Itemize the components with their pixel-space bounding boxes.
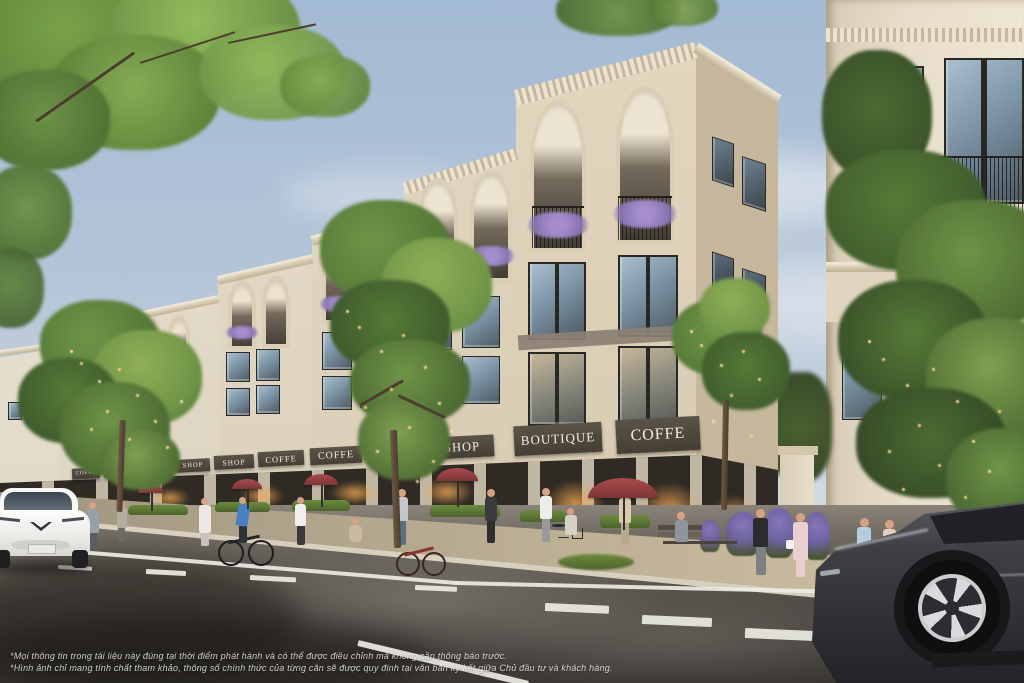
person — [484, 489, 498, 543]
shop-sign-label: SHOP — [222, 457, 246, 467]
person-legs — [756, 547, 766, 575]
arched-loggia — [262, 276, 290, 348]
person — [792, 513, 809, 577]
bicycle-wheel — [218, 540, 244, 566]
person-legs — [796, 560, 805, 577]
umbrella-pole — [457, 481, 459, 507]
window — [528, 352, 586, 426]
string-lights — [690, 330, 693, 333]
person-torso — [793, 522, 808, 560]
wisteria-flowers — [614, 200, 676, 228]
person-head — [756, 509, 765, 518]
planter-hedge — [128, 505, 188, 515]
handbag — [786, 540, 794, 549]
person — [539, 488, 553, 542]
window — [226, 388, 250, 416]
gate-pillar-cap — [776, 446, 818, 455]
shop-sign-label: COFFE — [630, 425, 686, 446]
person-seated — [674, 512, 688, 544]
person-torso — [295, 504, 306, 526]
shop-sign-label: COFFE — [265, 453, 297, 465]
person-head — [352, 518, 359, 525]
suv — [812, 492, 1024, 683]
person-torso — [540, 496, 552, 519]
shop-sign-label: COFFE — [318, 449, 355, 462]
window — [226, 352, 250, 382]
shop-sign-label: SHOP — [183, 461, 204, 469]
white-car — [0, 488, 92, 574]
tree-canopy — [700, 278, 770, 338]
person-head — [567, 508, 574, 515]
car-wheel — [72, 550, 88, 568]
tree-canopy — [100, 430, 180, 490]
person-legs — [239, 526, 247, 543]
person-seated — [564, 508, 577, 538]
window-side — [712, 136, 734, 187]
shop-sign: COFFE — [310, 446, 363, 466]
person-torso — [199, 505, 211, 533]
overhanging-foliage — [0, 70, 110, 170]
shop-sign: SHOP — [176, 458, 211, 473]
person — [752, 509, 769, 575]
street-render-scene: COFFE BOUTIQUE COFFE SHOP SHOP COFFE COF… — [0, 0, 1024, 683]
bicycle-wheel — [248, 540, 274, 566]
bicycle-wheel — [422, 552, 446, 576]
person-torso — [753, 518, 768, 547]
suv-hubcap — [945, 601, 959, 615]
window — [618, 346, 678, 424]
right-building-cornice — [826, 28, 1024, 42]
person-torso — [565, 515, 577, 535]
lavender-bush — [700, 520, 720, 552]
window — [256, 349, 280, 381]
disclaimer-line-2: *Hình ảnh chỉ mang tính chất tham khảo, … — [10, 663, 613, 673]
person — [198, 498, 211, 546]
person-legs — [487, 521, 495, 543]
person-legs — [542, 519, 550, 542]
person-head — [297, 497, 304, 504]
car-wheel — [0, 550, 10, 568]
arched-loggia — [228, 280, 256, 350]
person — [294, 497, 307, 545]
shop-sign: BOUTIQUE — [513, 422, 602, 457]
person-head — [542, 488, 550, 496]
person-head — [487, 489, 495, 497]
disclaimer-line-1: *Mọi thông tin trong tài liệu này đúng t… — [10, 651, 507, 661]
storefront-glow — [420, 478, 474, 506]
tree-canopy — [702, 332, 790, 410]
person — [618, 490, 632, 545]
string-lights — [70, 350, 73, 353]
wisteria-flowers — [528, 212, 588, 238]
person-legs — [118, 528, 125, 542]
person-legs — [297, 526, 305, 545]
window — [322, 376, 352, 410]
string-lights — [868, 340, 871, 343]
window — [618, 255, 678, 337]
shop-sign: COFFE — [258, 450, 305, 467]
umbrella-pole — [321, 485, 323, 507]
umbrella-pole — [151, 493, 153, 511]
shop-sign: SHOP — [214, 454, 255, 470]
wisteria-flowers — [226, 326, 258, 339]
person-head — [796, 513, 805, 522]
person-torso — [619, 498, 631, 523]
shop-sign-label: BOUTIQUE — [520, 429, 595, 449]
person-torso — [485, 497, 497, 521]
shop-sign: COFFE — [615, 416, 701, 454]
person-crouching — [348, 518, 362, 544]
window — [528, 262, 586, 340]
grass-patch — [558, 554, 634, 570]
window-side — [742, 156, 766, 212]
license-plate — [28, 544, 56, 554]
person-torso — [349, 525, 362, 542]
person-torso — [675, 520, 688, 542]
person-legs — [201, 533, 209, 546]
umbrella-pole — [247, 489, 249, 509]
person-head — [677, 512, 685, 520]
person-head — [201, 498, 208, 505]
overhanging-foliage — [280, 55, 370, 117]
window — [256, 385, 280, 414]
umbrella-pole — [623, 498, 625, 530]
string-lights — [346, 310, 349, 313]
